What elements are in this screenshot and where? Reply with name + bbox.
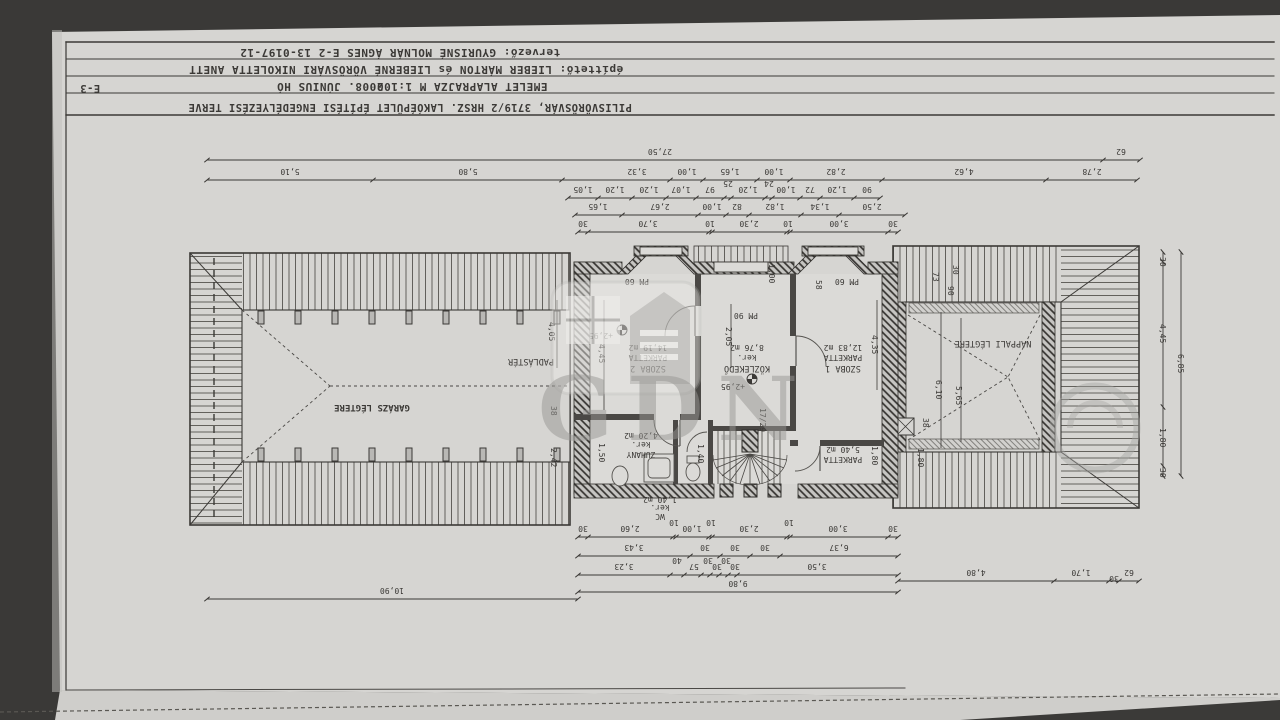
dim-label: 1,80 <box>916 448 925 467</box>
dim-label: 25 <box>723 179 733 188</box>
dim-label: 10 <box>669 518 679 527</box>
dim-label: 1,00 <box>702 202 721 211</box>
room-area: 12,83 m2 <box>824 343 863 352</box>
dim-label: 30 <box>888 524 898 533</box>
dim-label: 2,30 <box>739 219 758 228</box>
dim-label: 6,10 <box>934 380 943 399</box>
dim-label: 1,00 <box>677 167 696 176</box>
dim-label: 1,65 <box>720 167 739 176</box>
dim-label: 4,35 <box>870 335 879 354</box>
dim-label: 62 <box>1116 147 1126 156</box>
dim-label: 30 <box>703 556 713 565</box>
dim-label: 30 <box>730 543 740 552</box>
dim-label: 3,50 <box>807 562 826 571</box>
room-area: 8,76 m2 <box>730 343 764 352</box>
dim-label: 1,65 <box>588 202 607 211</box>
dim-label: 30 <box>578 219 588 228</box>
dim-label: 38 <box>921 418 930 428</box>
dim-label: 1,82 <box>765 202 784 211</box>
dim-label: 10 <box>706 518 716 527</box>
wall-right <box>882 262 898 494</box>
room-area: 5,40 m2 <box>826 445 860 454</box>
washbasin <box>612 466 628 486</box>
dim-label: 5,65 <box>954 386 963 405</box>
toilet <box>686 463 700 481</box>
room-area: 1,40 m2 <box>643 495 677 504</box>
dim-label: 10 <box>705 219 715 228</box>
title-drawing-name: EMELET ALAPRAJZA M 1:100 <box>377 80 548 93</box>
dormer-window <box>640 247 682 255</box>
dim-label: 1,80 <box>1158 428 1167 447</box>
dim-label: 1,00 <box>682 524 701 533</box>
dim-label: 5,10 <box>280 167 299 176</box>
dim-label: 90 <box>862 185 872 194</box>
dim-label: 2,50 <box>862 202 881 211</box>
dim-label: 4,45 <box>1158 324 1167 343</box>
dim-label: 1,80 <box>870 446 879 465</box>
room-name: SZOBA 1 <box>825 363 861 373</box>
dim-label: 72 <box>805 185 815 194</box>
dim-label: 1,00 <box>764 167 783 176</box>
dim-label: 30 <box>712 562 722 571</box>
dim-label: 1,20 <box>605 185 624 194</box>
dim-label: 57 <box>689 562 699 571</box>
pm-label: PM 90 <box>734 311 758 320</box>
dim-label: 30 <box>1109 574 1119 583</box>
dim-label: 27,50 <box>648 147 672 156</box>
dim-label: 24 <box>764 179 774 188</box>
dim-label: 10 <box>783 219 793 228</box>
dim-label: 4,62 <box>954 167 973 176</box>
photographed-floorplan: tervező: GYURISNÉ MOLNÁR ÁGNES E-2 13-01… <box>0 0 1280 720</box>
middle-window <box>714 262 768 272</box>
dim-label: 1,20 <box>738 185 757 194</box>
dim-label: 30 <box>721 556 731 565</box>
dim-label: 1,05 <box>573 185 592 194</box>
dim-label: 73 <box>931 272 940 282</box>
room-finish: PARKETTA <box>824 455 863 464</box>
dim-label: 3,00 <box>829 219 848 228</box>
dim-label: 1,20 <box>639 185 658 194</box>
dim-label: 3,00 <box>828 524 847 533</box>
dim-label: 10 <box>784 518 794 527</box>
dim-label: 30 <box>578 524 588 533</box>
garage-roof: GARÁZS LÉGTERE PADLÁSTÉR 4,05 38 2,42 <box>190 253 570 525</box>
dim-label: 4,80 <box>966 568 985 577</box>
dim-label: 40 <box>672 556 682 565</box>
watermark-text: GDN <box>538 357 812 461</box>
room-label-nappali: NAPPALI LÉGTERE <box>955 338 1032 350</box>
dim-label: 82 <box>732 202 742 211</box>
dim-label: 2,05 <box>724 327 733 346</box>
room-name: WC <box>655 512 665 521</box>
title-project: PILISVÖRÖSVÁR, 3719/2 HRSZ. LAKÓÉPÜLET É… <box>188 101 632 115</box>
dim-label: 90 <box>946 286 955 296</box>
dim-label: 1,20 <box>827 185 846 194</box>
sheet-code: E-3 <box>80 82 100 94</box>
dim-label: 1,00 <box>767 264 776 283</box>
dim-label: 30 <box>1158 257 1167 267</box>
dim-label: 3,70 <box>638 219 657 228</box>
dim-label: 3,23 <box>614 562 633 571</box>
dim-label: 62 <box>1124 568 1134 577</box>
dim-label: 6,85 <box>1176 354 1185 373</box>
dim-label: 30 <box>951 265 960 275</box>
dim-label: 3,43 <box>624 543 643 552</box>
room-label-garazs: GARÁZS LÉGTERE <box>334 402 410 414</box>
dim-label: 97 <box>705 185 715 194</box>
dim-label: 5,80 <box>458 167 477 176</box>
dim-label: 30 <box>730 562 740 571</box>
dim-label: 1,34 <box>810 202 829 211</box>
dim-label: 30 <box>760 543 770 552</box>
dim-label: 2,30 <box>739 524 758 533</box>
dim-label: 2,78 <box>1082 167 1101 176</box>
balcony-pillars <box>720 484 781 497</box>
dim-label: 3,32 <box>627 167 646 176</box>
dim-label: 2,60 <box>620 524 639 533</box>
room-finish: ker. <box>650 503 669 512</box>
dim-label: 30 <box>1158 468 1167 478</box>
dim-label: 1,00 <box>776 185 795 194</box>
dim-label: 30 <box>888 219 898 228</box>
dim-label: 30 <box>700 543 710 552</box>
dim-label: 9,80 <box>728 579 747 588</box>
pm-label: PM 60 <box>835 277 859 286</box>
dim-label: 1,07 <box>671 185 690 194</box>
title-designer: tervező: GYURISNÉ MOLNÁR ÁGNES E-2 13-01… <box>240 46 561 59</box>
dim-label: 2,67 <box>650 202 669 211</box>
dim-label: 6,37 <box>829 543 848 552</box>
dim-label: 2,82 <box>826 167 845 176</box>
room-finish: PARKETTA <box>824 353 863 362</box>
floorplan-drawing: tervező: GYURISNÉ MOLNÁR ÁGNES E-2 13-01… <box>0 0 1280 720</box>
dim-label: 58 <box>814 280 823 290</box>
title-date: 2008. JÚNIUS HÓ <box>277 80 384 93</box>
dim-label: 10,90 <box>380 586 404 595</box>
title-client: építtető: LIEBER MÁRTON és LIEBERNÉ VÖRÖ… <box>189 63 623 77</box>
dormer-window <box>808 247 858 255</box>
dim-label: 1,70 <box>1071 568 1090 577</box>
